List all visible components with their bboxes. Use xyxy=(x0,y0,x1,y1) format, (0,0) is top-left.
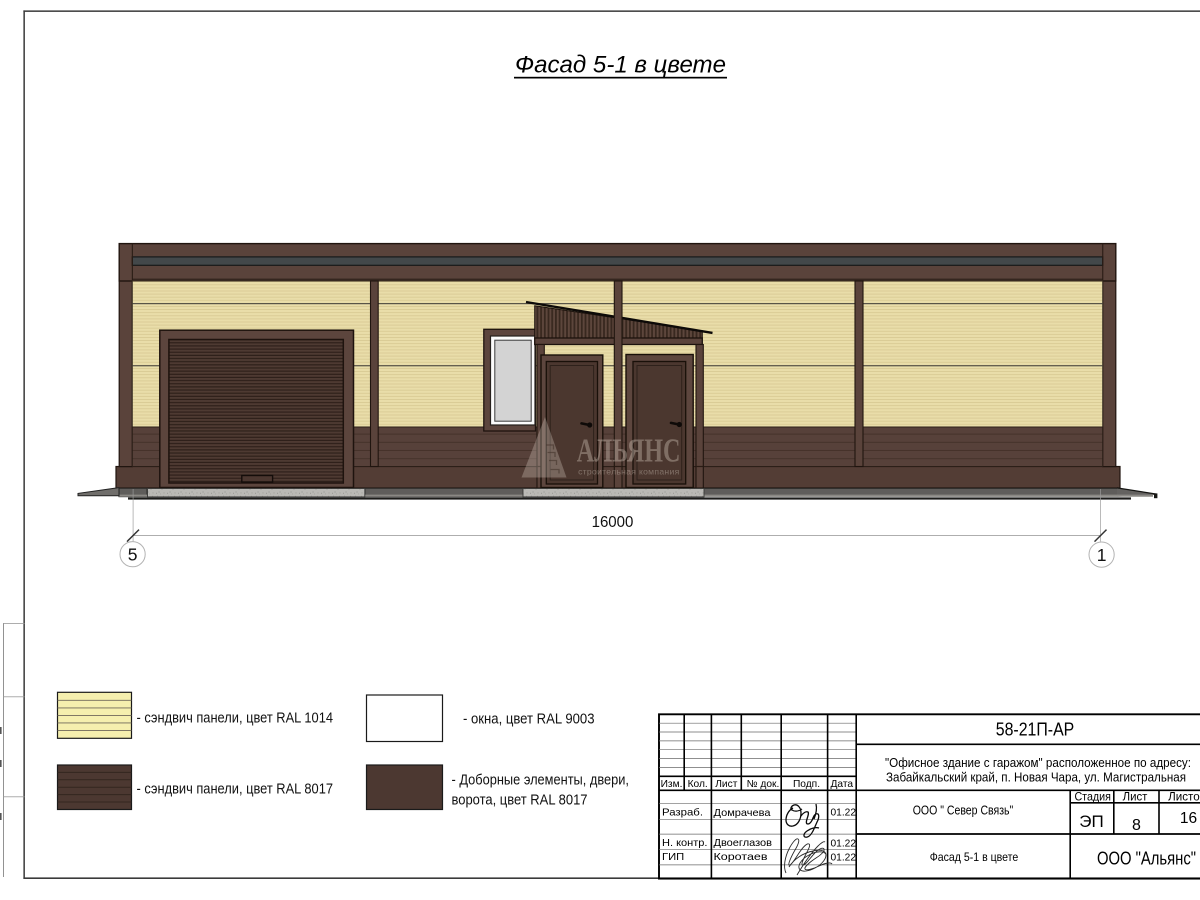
svg-text:- сэндвич панели, цвет RAL 801: - сэндвич панели, цвет RAL 8017 xyxy=(137,782,334,798)
svg-text:Домрачева: Домрачева xyxy=(714,808,771,819)
svg-text:Разраб.: Разраб. xyxy=(662,806,703,818)
svg-text:Стадия: Стадия xyxy=(1074,791,1111,804)
svg-text:№ док.: № док. xyxy=(747,779,780,790)
svg-text:Кол.: Кол. xyxy=(688,779,708,790)
svg-text:8: 8 xyxy=(1132,817,1141,834)
svg-text:- сэндвич панели, цвет RAL 101: - сэндвич панели, цвет RAL 1014 xyxy=(137,711,334,727)
svg-text:58-21П-АР: 58-21П-АР xyxy=(996,719,1075,740)
svg-text:- Доборные элементы, двери,: - Доборные элементы, двери, xyxy=(452,773,630,789)
svg-text:ООО " Север Связь": ООО " Север Связь" xyxy=(913,804,1014,818)
svg-text:Фасад 5-1 в цвете: Фасад 5-1 в цвете xyxy=(515,52,726,79)
svg-text:16: 16 xyxy=(1180,810,1197,827)
svg-text:01.22: 01.22 xyxy=(831,808,857,819)
svg-text:"Офисное здание с гаражом" рас: "Офисное здание с гаражом" расположенное… xyxy=(885,756,1191,770)
svg-text:ГИП: ГИП xyxy=(662,852,684,863)
svg-text:ООО "Альянс": ООО "Альянс" xyxy=(1097,849,1196,869)
svg-text:ЭП: ЭП xyxy=(1079,812,1103,831)
svg-text:01.22: 01.22 xyxy=(831,838,857,849)
svg-text:Коротаев: Коротаев xyxy=(714,852,769,863)
svg-text:16000: 16000 xyxy=(592,514,634,531)
svg-text:Н. контр.: Н. контр. xyxy=(662,838,708,849)
svg-text:01.22: 01.22 xyxy=(831,852,857,863)
svg-text:Лист: Лист xyxy=(1123,791,1148,804)
svg-text:строительная компания: строительная компания xyxy=(578,467,680,477)
svg-text:5: 5 xyxy=(128,544,138,564)
svg-text:АЛЬЯНС: АЛЬЯНС xyxy=(577,433,681,470)
svg-text:Дата: Дата xyxy=(831,779,854,790)
svg-text:Подп.: Подп. xyxy=(793,779,820,790)
svg-text:Забайкальский край, п. Новая Ч: Забайкальский край, п. Новая Чара, ул. М… xyxy=(886,771,1186,785)
svg-text:Фасад 5-1 в цвете: Фасад 5-1 в цвете xyxy=(930,850,1019,864)
svg-text:1: 1 xyxy=(1097,545,1107,565)
svg-text:Лист: Лист xyxy=(715,779,737,790)
svg-text:Листов: Листов xyxy=(1168,791,1200,804)
svg-text:ворота, цвет RAL 8017: ворота, цвет RAL 8017 xyxy=(452,793,588,809)
svg-text:Двоеглазов: Двоеглазов xyxy=(714,838,773,849)
svg-text:Изм.: Изм. xyxy=(661,779,683,790)
svg-text:- окна, цвет RAL 9003: - окна, цвет RAL 9003 xyxy=(463,712,595,728)
